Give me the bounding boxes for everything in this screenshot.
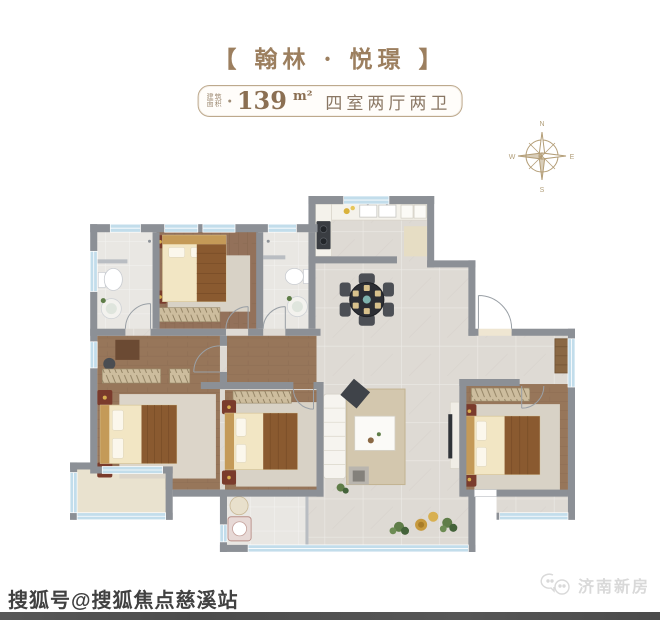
floor-plan xyxy=(57,193,575,565)
blanket xyxy=(197,244,226,301)
area-label: 建筑 面积 xyxy=(207,94,223,108)
entry-door-icon xyxy=(478,296,511,329)
room-layout-text: 四室两厅两卫 xyxy=(325,89,451,114)
compass-rose-icon: N E S W xyxy=(508,116,576,196)
desk-icon xyxy=(115,340,139,360)
toilet-icon xyxy=(104,268,122,290)
compass-east-label: E xyxy=(570,154,575,161)
bedroom1-wardrobe-icon xyxy=(158,308,220,322)
watermark-jinan-text: 济南新房 xyxy=(578,573,650,597)
food-decor xyxy=(344,208,350,214)
compass-west-label: W xyxy=(509,154,516,161)
master-wardrobe-icon xyxy=(102,369,160,383)
area-badge: 建筑 面积 ● 139 m² 四室两厅两卫 xyxy=(198,85,463,117)
kitchen-mat xyxy=(404,226,427,256)
stove-icon xyxy=(317,221,331,249)
area-unit: m² xyxy=(293,89,312,104)
tv-icon xyxy=(448,414,452,458)
sink-left-icon xyxy=(360,205,377,217)
basin-icon xyxy=(230,497,248,515)
sink-right-icon xyxy=(379,205,396,217)
hallway-floor xyxy=(227,336,317,389)
bullet-icon: ● xyxy=(228,98,232,105)
balcony-door-gap xyxy=(474,490,496,497)
page-title: 【 翰林 · 悦璟 】 xyxy=(0,40,660,74)
watermark-sohu: 搜狐号@搜狐焦点慈溪站 xyxy=(8,584,239,613)
chat-bubbles-logo-icon xyxy=(540,572,574,598)
bedroom3-wardrobe-icon xyxy=(233,391,291,403)
blanket xyxy=(263,413,297,469)
desk-chair-icon xyxy=(103,358,115,370)
entry-threshold xyxy=(478,329,511,336)
bedroom4-wardrobe-icon xyxy=(471,388,529,401)
page-background: 【 翰林 · 悦璟 】 建筑 面积 ● 139 m² 四室两厅两卫 N E S … xyxy=(0,0,660,620)
area-value: 139 xyxy=(237,89,287,113)
toilet-icon xyxy=(285,268,303,284)
blanket xyxy=(141,405,176,463)
compass-north-label: N xyxy=(539,121,544,128)
bottom-bar xyxy=(0,612,660,620)
coffee-table-icon xyxy=(355,416,395,450)
blanket xyxy=(505,416,540,474)
watermark-jinan: 济南新房 xyxy=(540,572,650,598)
